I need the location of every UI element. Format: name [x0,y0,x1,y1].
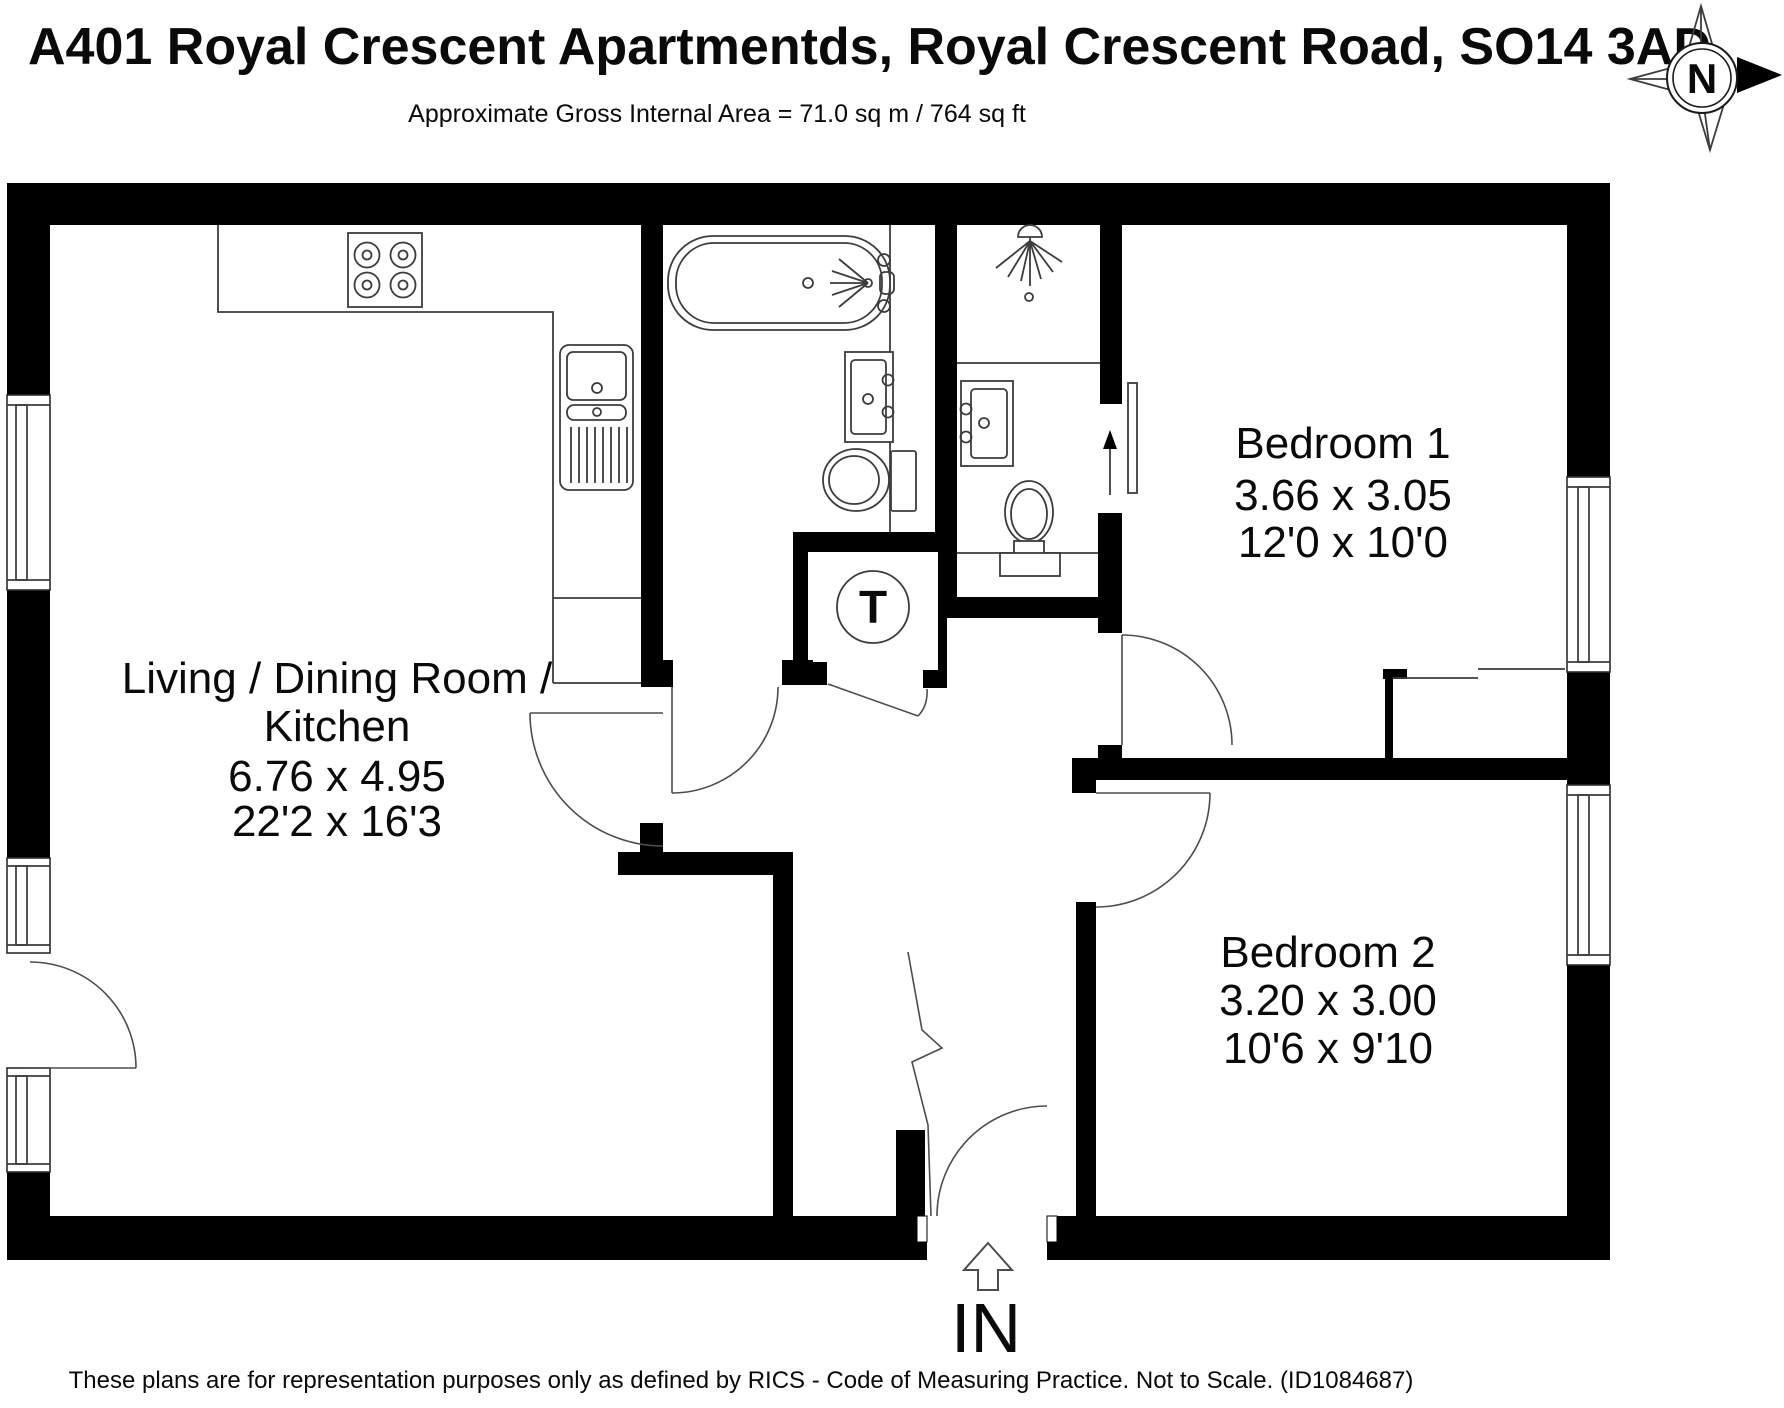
window-bedroom1-right [1567,477,1610,672]
wardrobe-icon [1393,669,1565,678]
living-room-label: Living / Dining Room / Kitchen 6.76 x 4.… [122,654,553,846]
bedroom1-label: Bedroom 1 3.66 x 3.05 12'0 x 10'0 [1234,419,1452,567]
bedroom1-name: Bedroom 1 [1235,419,1450,468]
bedroom1-door [1122,635,1232,745]
balcony-door [30,962,136,1068]
disclaimer-text: These plans are for representation purpo… [69,1367,1414,1394]
window-living-left-lower [7,1068,50,1172]
water-tank-icon: T [828,571,927,716]
bedroom2-dims-metric: 3.20 x 3.00 [1219,976,1437,1025]
bedroom2-label: Bedroom 2 3.20 x 3.00 10'6 x 9'10 [1219,928,1437,1073]
entrance-label: IN [951,1289,1021,1367]
living-dims-imperial: 22'2 x 16'3 [232,797,442,846]
kitchen-sink-icon [560,345,633,490]
bathroom-basin-icon [845,352,894,442]
hob-icon [348,233,422,307]
gross-area-subtitle: Approximate Gross Internal Area = 71.0 s… [408,100,1026,128]
bedroom2-door [1096,793,1210,907]
compass-north-letter: N [1687,55,1717,102]
bathroom-toilet-icon [823,449,916,511]
bedroom2-name: Bedroom 2 [1220,928,1435,977]
bath-icon [668,236,894,330]
bedroom1-dims-imperial: 12'0 x 10'0 [1238,518,1448,567]
shower-room-toilet-icon [1000,481,1060,576]
water-tank-letter: T [859,581,887,633]
shower-room-basin-icon [961,381,1014,466]
entrance-arrow-icon [964,1243,1012,1290]
entrance-door [908,952,1047,1216]
floorplan-canvas: A401 Royal Crescent Apartmentds, Royal C… [0,0,1784,1408]
bedroom2-dims-imperial: 10'6 x 9'10 [1223,1024,1433,1073]
living-name-line2: Kitchen [264,702,411,751]
bathroom-door [672,687,778,793]
window-bedroom2-right [1567,785,1610,965]
page-title: A401 Royal Crescent Apartmentds, Royal C… [28,18,1711,76]
living-name-line1: Living / Dining Room / [122,654,553,703]
shower-icon [996,225,1062,301]
bedroom1-dims-metric: 3.66 x 3.05 [1234,471,1452,520]
window-living-left-upper [7,858,50,953]
window-kitchen-left [7,395,50,590]
walls [7,183,1610,1260]
living-dims-metric: 6.76 x 4.95 [228,752,446,801]
